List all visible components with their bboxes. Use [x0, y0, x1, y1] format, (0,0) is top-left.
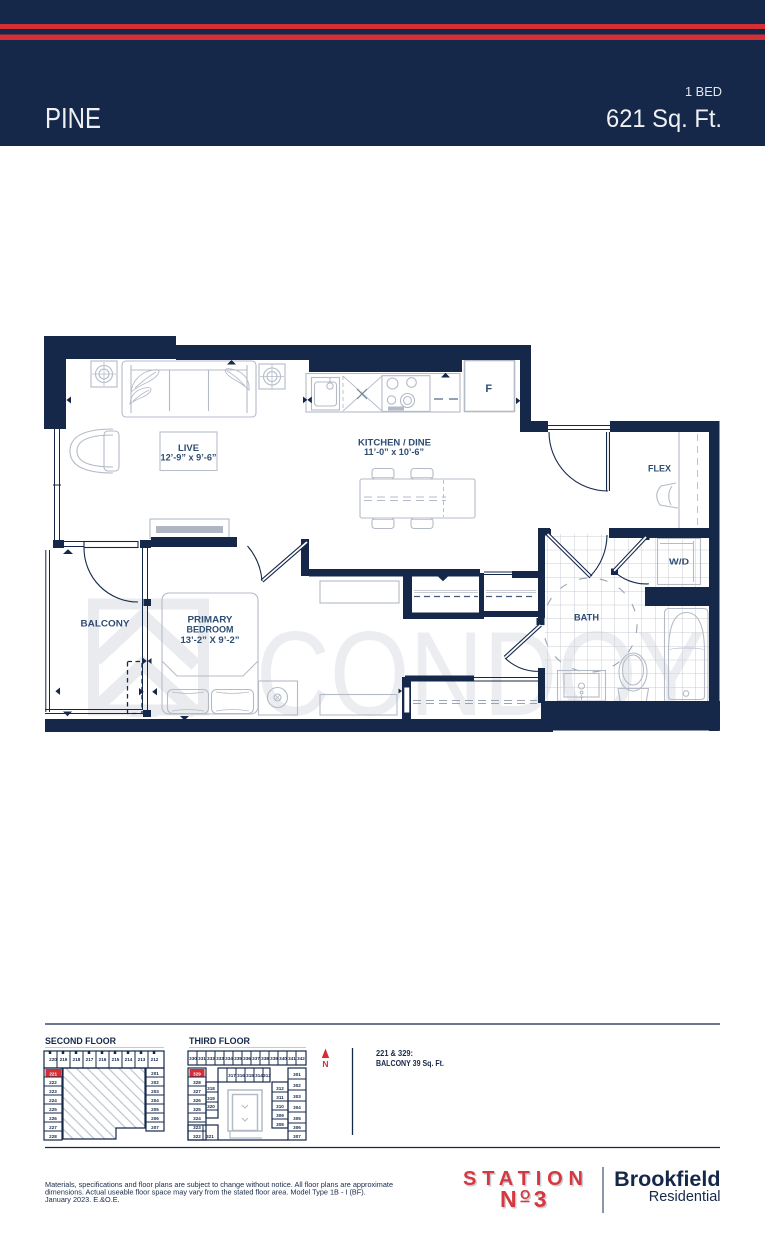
svg-text:315: 315: [246, 1073, 254, 1078]
svg-text:317: 317: [228, 1073, 236, 1078]
svg-text:324: 324: [193, 1116, 201, 1121]
svg-text:1 BED: 1 BED: [685, 84, 722, 99]
svg-text:217: 217: [86, 1057, 94, 1062]
svg-text:303: 303: [293, 1094, 301, 1099]
svg-text:218: 218: [73, 1057, 81, 1062]
svg-text:BALCONY: BALCONY: [81, 619, 130, 629]
svg-text:320: 320: [207, 1104, 215, 1109]
svg-text:214: 214: [125, 1057, 133, 1062]
svg-text:225: 225: [49, 1107, 57, 1112]
svg-text:311: 311: [276, 1095, 284, 1100]
svg-text:323: 323: [193, 1125, 201, 1130]
svg-text:332: 332: [207, 1056, 215, 1061]
svg-text:329: 329: [193, 1071, 201, 1076]
svg-text:316: 316: [237, 1073, 245, 1078]
svg-text:221 & 329:: 221 & 329:: [376, 1048, 413, 1058]
svg-text:W/D: W/D: [669, 557, 689, 567]
svg-text:339: 339: [270, 1056, 278, 1061]
svg-text:PRIMARY: PRIMARY: [188, 615, 233, 625]
svg-text:328: 328: [193, 1080, 201, 1085]
svg-text:215: 215: [112, 1057, 120, 1062]
svg-text:13’-2” X 9’-2”: 13’-2” X 9’-2”: [181, 635, 240, 645]
svg-text:226: 226: [49, 1116, 57, 1121]
svg-text:LIVE: LIVE: [178, 443, 199, 453]
svg-text:N: N: [322, 1059, 328, 1069]
svg-text:221: 221: [49, 1071, 57, 1076]
svg-text:THIRD FLOOR: THIRD FLOOR: [189, 1036, 250, 1047]
svg-text:321: 321: [206, 1134, 214, 1139]
svg-text:326: 326: [193, 1098, 201, 1103]
svg-text:340: 340: [279, 1056, 287, 1061]
svg-text:224: 224: [49, 1098, 57, 1103]
svg-text:310: 310: [276, 1104, 284, 1109]
svg-text:223: 223: [49, 1089, 57, 1094]
svg-text:318: 318: [207, 1086, 215, 1091]
svg-text:January 2023. E.&O.E.: January 2023. E.&O.E.: [45, 1195, 120, 1204]
svg-text:327: 327: [193, 1089, 201, 1094]
svg-text:205: 205: [151, 1107, 159, 1112]
svg-text:202: 202: [151, 1080, 159, 1085]
svg-text:331: 331: [198, 1056, 206, 1061]
svg-text:Brookfield: Brookfield: [614, 1167, 720, 1191]
svg-text:336: 336: [243, 1056, 251, 1061]
svg-text:203: 203: [151, 1089, 159, 1094]
svg-text:BATH: BATH: [574, 613, 599, 623]
svg-text:312: 312: [276, 1086, 284, 1091]
svg-text:309: 309: [276, 1113, 284, 1118]
svg-text:335: 335: [234, 1056, 242, 1061]
svg-text:219: 219: [60, 1057, 68, 1062]
svg-text:BEDROOM: BEDROOM: [187, 625, 234, 635]
svg-text:322: 322: [193, 1134, 201, 1139]
svg-text:313: 313: [263, 1073, 271, 1078]
svg-text:621 Sq. Ft.: 621 Sq. Ft.: [606, 105, 722, 133]
svg-text:207: 207: [151, 1125, 159, 1130]
svg-text:216: 216: [99, 1057, 107, 1062]
svg-text:305: 305: [293, 1116, 301, 1121]
svg-text:330: 330: [189, 1056, 197, 1061]
svg-text:KITCHEN / DINE: KITCHEN / DINE: [358, 438, 431, 448]
svg-text:341: 341: [288, 1056, 296, 1061]
svg-text:304: 304: [293, 1105, 301, 1110]
svg-text:SECOND FLOOR: SECOND FLOOR: [45, 1036, 116, 1047]
svg-text:220: 220: [49, 1057, 57, 1062]
svg-text:306: 306: [293, 1125, 301, 1130]
svg-text:301: 301: [293, 1072, 301, 1077]
svg-text:FLEX: FLEX: [648, 464, 671, 474]
svg-text:314: 314: [255, 1073, 263, 1078]
svg-text:11’-0” x 10’-6”: 11’-0” x 10’-6”: [364, 447, 424, 457]
svg-text:204: 204: [151, 1098, 159, 1103]
svg-text:228: 228: [49, 1134, 57, 1139]
svg-text:213: 213: [138, 1057, 146, 1062]
svg-text:212: 212: [151, 1057, 159, 1062]
svg-text:334: 334: [225, 1056, 233, 1061]
svg-text:NO3: NO3: [500, 1186, 550, 1212]
svg-text:333: 333: [216, 1056, 224, 1061]
svg-text:206: 206: [151, 1116, 159, 1121]
svg-text:227: 227: [49, 1125, 57, 1130]
svg-text:337: 337: [252, 1056, 260, 1061]
svg-text:Residential: Residential: [649, 1189, 721, 1205]
svg-text:302: 302: [293, 1083, 301, 1088]
svg-text:307: 307: [293, 1134, 301, 1139]
svg-text:319: 319: [207, 1096, 215, 1101]
svg-text:222: 222: [49, 1080, 57, 1085]
svg-text:F: F: [485, 383, 492, 395]
svg-text:BALCONY 39 Sq. Ft.: BALCONY 39 Sq. Ft.: [376, 1058, 444, 1068]
svg-text:338: 338: [261, 1056, 269, 1061]
svg-text:325: 325: [193, 1107, 201, 1112]
svg-text:308: 308: [276, 1122, 284, 1127]
svg-text:12’-9” x 9’-6”: 12’-9” x 9’-6”: [161, 453, 217, 463]
svg-text:201: 201: [151, 1071, 159, 1076]
svg-text:PINE: PINE: [45, 103, 101, 135]
svg-text:342: 342: [297, 1056, 305, 1061]
